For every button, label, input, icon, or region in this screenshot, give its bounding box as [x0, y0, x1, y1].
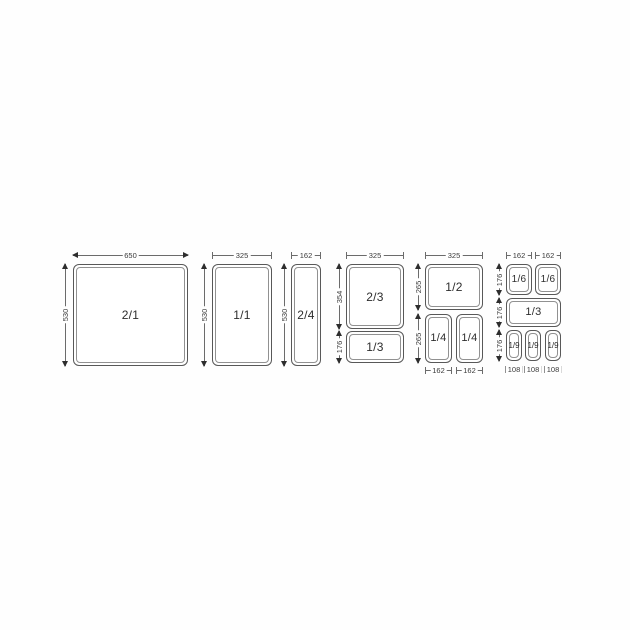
dimension-value: 176: [336, 339, 344, 356]
arrow-up-icon: [496, 329, 502, 335]
tick: [212, 252, 213, 259]
dimension-value: 108: [506, 366, 523, 374]
dimension-value: 108: [545, 366, 562, 374]
pan-1-4-left: 1/4: [425, 314, 452, 363]
dimension-value: 265: [415, 279, 423, 296]
arrow-up-icon: [336, 330, 342, 336]
pan-1-4-right: 1/4: [456, 314, 483, 363]
arrow-down-icon: [281, 361, 287, 367]
dimension-value: 176: [496, 271, 504, 288]
tick: [291, 252, 292, 259]
dimension-value: 162: [430, 367, 447, 375]
dimension-height-1-6: 176: [495, 264, 505, 295]
pan-1-3: 1/3: [346, 331, 404, 363]
dimension-value: 325: [234, 252, 251, 260]
dimension-width-1-6-left: 162: [506, 251, 532, 261]
pan-label: 1/2: [445, 281, 463, 293]
pan-1-2: 1/2: [425, 264, 483, 310]
arrow-up-icon: [415, 263, 421, 269]
pan-1-3-wide: 1/3: [506, 298, 561, 327]
pan-label: 1/9: [527, 342, 538, 350]
pan-label: 1/4: [461, 333, 477, 344]
pan-label: 1/4: [430, 333, 446, 344]
dimension-width-2-3: 325: [346, 251, 404, 261]
arrow-up-icon: [62, 263, 68, 269]
tick: [456, 367, 457, 374]
pan-label: 1/3: [525, 307, 541, 318]
arrow-down-icon: [62, 361, 68, 367]
dimension-width-2-4: 162: [291, 251, 321, 261]
pan-label: 1/6: [512, 275, 527, 285]
dimension-height-1-4: 265: [414, 314, 424, 363]
pan-2-1: 2/1: [73, 264, 188, 366]
dimension-width-1-4-right: 162: [456, 366, 483, 376]
dimension-value: 530: [281, 307, 289, 324]
dimension-width-1-9-b: 108: [524, 365, 542, 375]
tick: [271, 252, 272, 259]
dimension-value: 530: [62, 307, 70, 324]
arrow-down-icon: [496, 322, 502, 328]
dimension-width-2-1: 650: [73, 251, 188, 261]
pan-label: 2/3: [366, 291, 384, 303]
tick: [535, 252, 536, 259]
dimension-value: 162: [540, 252, 557, 260]
dimension-height-1-2: 265: [414, 264, 424, 310]
arrow-up-icon: [496, 297, 502, 303]
pan-label: 2/4: [297, 309, 315, 321]
arrow-up-icon: [336, 263, 342, 269]
arrow-left-icon: [72, 252, 78, 258]
dimension-value: 162: [461, 367, 478, 375]
dimension-value: 162: [298, 252, 315, 260]
dimension-height-1-3: 176: [335, 331, 345, 363]
arrow-up-icon: [281, 263, 287, 269]
dimension-value: 325: [367, 252, 384, 260]
arrow-right-icon: [183, 252, 189, 258]
dimension-height-2-4: 530: [280, 264, 290, 366]
tick: [451, 367, 452, 374]
dimension-value: 325: [446, 252, 463, 260]
arrow-down-icon: [415, 305, 421, 311]
dimension-width-1-1: 325: [212, 251, 272, 261]
pan-label: 1/1: [233, 309, 251, 321]
tick: [403, 252, 404, 259]
tick: [506, 252, 507, 259]
dimension-value: 162: [511, 252, 528, 260]
arrow-down-icon: [201, 361, 207, 367]
dimension-value: 265: [415, 330, 423, 347]
gastronorm-pan-size-diagram: 650 530 2/1 325 530 1/1 162 530 2/4: [0, 0, 630, 630]
tick: [531, 252, 532, 259]
pan-1-6-left: 1/6: [506, 264, 532, 295]
dimension-width-1-9-a: 108: [505, 365, 523, 375]
dimension-height-1-9: 176: [495, 330, 505, 361]
tick: [560, 252, 561, 259]
pan-2-4: 2/4: [291, 264, 321, 366]
pan-1-9-b: 1/9: [525, 330, 541, 361]
pan-label: 2/1: [122, 309, 140, 321]
arrow-up-icon: [496, 263, 502, 269]
dimension-value: 176: [496, 304, 504, 321]
arrow-up-icon: [415, 313, 421, 319]
pan-1-1: 1/1: [212, 264, 272, 366]
dimension-height-2-3: 354: [335, 264, 345, 329]
dimension-value: 354: [336, 288, 344, 305]
arrow-down-icon: [336, 358, 342, 364]
dimension-width-1-2: 325: [425, 251, 483, 261]
pan-1-9-a: 1/9: [506, 330, 522, 361]
pan-label: 1/9: [547, 342, 558, 350]
pan-label: 1/9: [508, 342, 519, 350]
pan-label: 1/6: [541, 275, 556, 285]
tick: [320, 252, 321, 259]
arrow-down-icon: [415, 358, 421, 364]
arrow-down-icon: [496, 356, 502, 362]
dimension-width-1-4-left: 162: [425, 366, 452, 376]
dimension-value: 650: [122, 252, 139, 260]
dimension-width-1-6-right: 162: [535, 251, 561, 261]
tick: [482, 252, 483, 259]
pan-1-6-right: 1/6: [535, 264, 561, 295]
dimension-width-1-9-c: 108: [544, 365, 562, 375]
dimension-value: 530: [201, 307, 209, 324]
dimension-height-1-1: 530: [200, 264, 210, 366]
tick: [425, 252, 426, 259]
dimension-value: 108: [525, 366, 542, 374]
tick: [425, 367, 426, 374]
tick: [346, 252, 347, 259]
pan-1-9-c: 1/9: [545, 330, 561, 361]
arrow-up-icon: [201, 263, 207, 269]
pan-label: 1/3: [366, 341, 384, 353]
dimension-value: 176: [496, 337, 504, 354]
dimension-height-2-1: 530: [61, 264, 71, 366]
tick: [482, 367, 483, 374]
arrow-down-icon: [496, 290, 502, 296]
dimension-height-1-3-row: 176: [495, 298, 505, 327]
pan-2-3: 2/3: [346, 264, 404, 329]
